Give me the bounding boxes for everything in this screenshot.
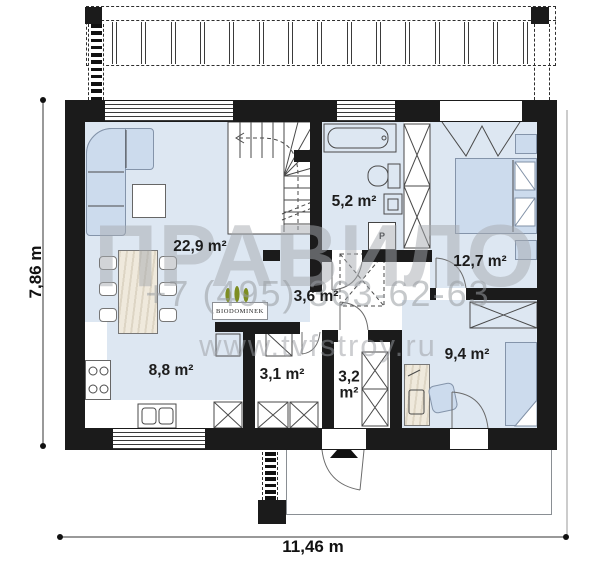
floor-stairs	[228, 122, 310, 234]
wall-stairs-stub	[263, 250, 280, 261]
pergola-trellis	[88, 24, 104, 100]
wall-entrance-right	[390, 330, 402, 428]
label-living-room: 22,9 m²	[173, 238, 226, 256]
wall-bedroom-main-bottom	[466, 288, 557, 300]
nightstand	[515, 240, 537, 260]
porch-slab	[258, 500, 286, 524]
pergola-corner-post-right	[531, 7, 549, 24]
trellis-rung	[91, 89, 102, 93]
pergola-inner-line	[86, 20, 556, 21]
label-hall: 3,6 m²	[294, 288, 339, 306]
sofa-vertical-arm	[86, 128, 126, 236]
wall-living-bathroom	[310, 122, 322, 292]
trellis-rung	[91, 46, 102, 50]
pergola-post	[229, 22, 234, 64]
porch-step	[265, 471, 276, 475]
label-entrance: 3,2 m²	[332, 370, 366, 403]
coffee-table	[132, 184, 166, 218]
wall-bathroom-bottom-a	[322, 250, 332, 262]
porch-step	[265, 484, 276, 488]
trellis-rung	[91, 75, 102, 79]
kitchen-sink	[138, 404, 176, 428]
rear-terrace-outline	[286, 447, 552, 515]
wall-kitchen-stub	[215, 322, 243, 332]
washing-machine-label: P	[379, 231, 385, 241]
pergola-corner-post-left	[85, 7, 102, 24]
pergola-post	[141, 22, 146, 64]
trellis-rung	[91, 60, 102, 64]
label-pantry: 3,1 m²	[260, 366, 305, 384]
office-chair	[427, 382, 458, 415]
label-bedroom-second: 9,4 m²	[445, 346, 490, 364]
dining-chair	[99, 282, 117, 296]
wall-left	[65, 100, 85, 450]
pergola-side-strip	[534, 24, 550, 100]
trellis-rung	[91, 68, 102, 72]
pergola-post	[317, 22, 322, 64]
dining-chair	[159, 282, 177, 296]
washing-machine: P	[368, 222, 396, 250]
pergola-post	[523, 22, 528, 64]
dimension-height: 7,86 m	[26, 222, 46, 322]
wall-pantry-top	[243, 322, 300, 334]
porch-step	[265, 477, 276, 481]
stove	[85, 360, 111, 400]
dining-chair	[99, 308, 117, 322]
logo-text: BIODOMINEK	[216, 308, 264, 315]
dining-chair	[159, 256, 177, 270]
desk	[404, 364, 430, 426]
pergola-post	[259, 22, 264, 64]
porch-step	[265, 452, 276, 456]
door-opening-entrance	[322, 429, 366, 449]
closet-bathroom-side	[404, 124, 430, 248]
trellis-rung	[91, 24, 102, 28]
wall-kitchen-pantry	[243, 322, 255, 428]
double-bed	[455, 158, 537, 234]
pergola-post	[288, 22, 293, 64]
porch-step	[265, 465, 276, 469]
pergola-post	[200, 22, 205, 64]
porch-step	[265, 458, 276, 462]
window-kitchen	[112, 429, 206, 449]
pergola-post	[171, 22, 176, 64]
label-kitchen: 8,8 m²	[149, 362, 194, 380]
porch-step	[265, 490, 276, 494]
floor-plan-canvas: P	[0, 0, 600, 564]
pergola-post	[112, 22, 117, 64]
trellis-rung	[91, 53, 102, 57]
trellis-rung	[91, 31, 102, 35]
pergola-post	[435, 22, 440, 64]
logo-box: BIODOMINEK	[212, 302, 268, 320]
door-opening-terrace-bedroom	[440, 101, 522, 121]
door-opening-bedroom-second	[450, 429, 488, 449]
trellis-rung	[91, 39, 102, 43]
pergola-post	[493, 22, 498, 64]
wall-bedroom-main-stub	[430, 288, 436, 300]
dimension-width: 11,46 m	[282, 537, 343, 557]
pergola-posts	[112, 22, 528, 64]
pergola-post	[376, 22, 381, 64]
window-living	[104, 101, 234, 121]
nightstand	[515, 134, 537, 154]
single-bed	[505, 342, 537, 426]
wall-chimney-stub	[294, 150, 310, 162]
pergola-post	[405, 22, 410, 64]
porch-steps	[262, 452, 278, 500]
wall-right	[537, 100, 557, 450]
dining-chair	[99, 256, 117, 270]
dining-chair	[159, 308, 177, 322]
pergola-post	[347, 22, 352, 64]
pergola-post	[464, 22, 469, 64]
trellis-rung	[91, 82, 102, 86]
window-bathroom	[336, 101, 396, 121]
kitchen-wardrobe-row	[214, 402, 318, 428]
dining-table	[118, 250, 158, 334]
wall-bathroom-bottom-b	[362, 250, 432, 262]
label-bathroom: 5,2 m²	[332, 193, 377, 211]
label-bedroom-main: 12,7 m²	[453, 253, 506, 271]
